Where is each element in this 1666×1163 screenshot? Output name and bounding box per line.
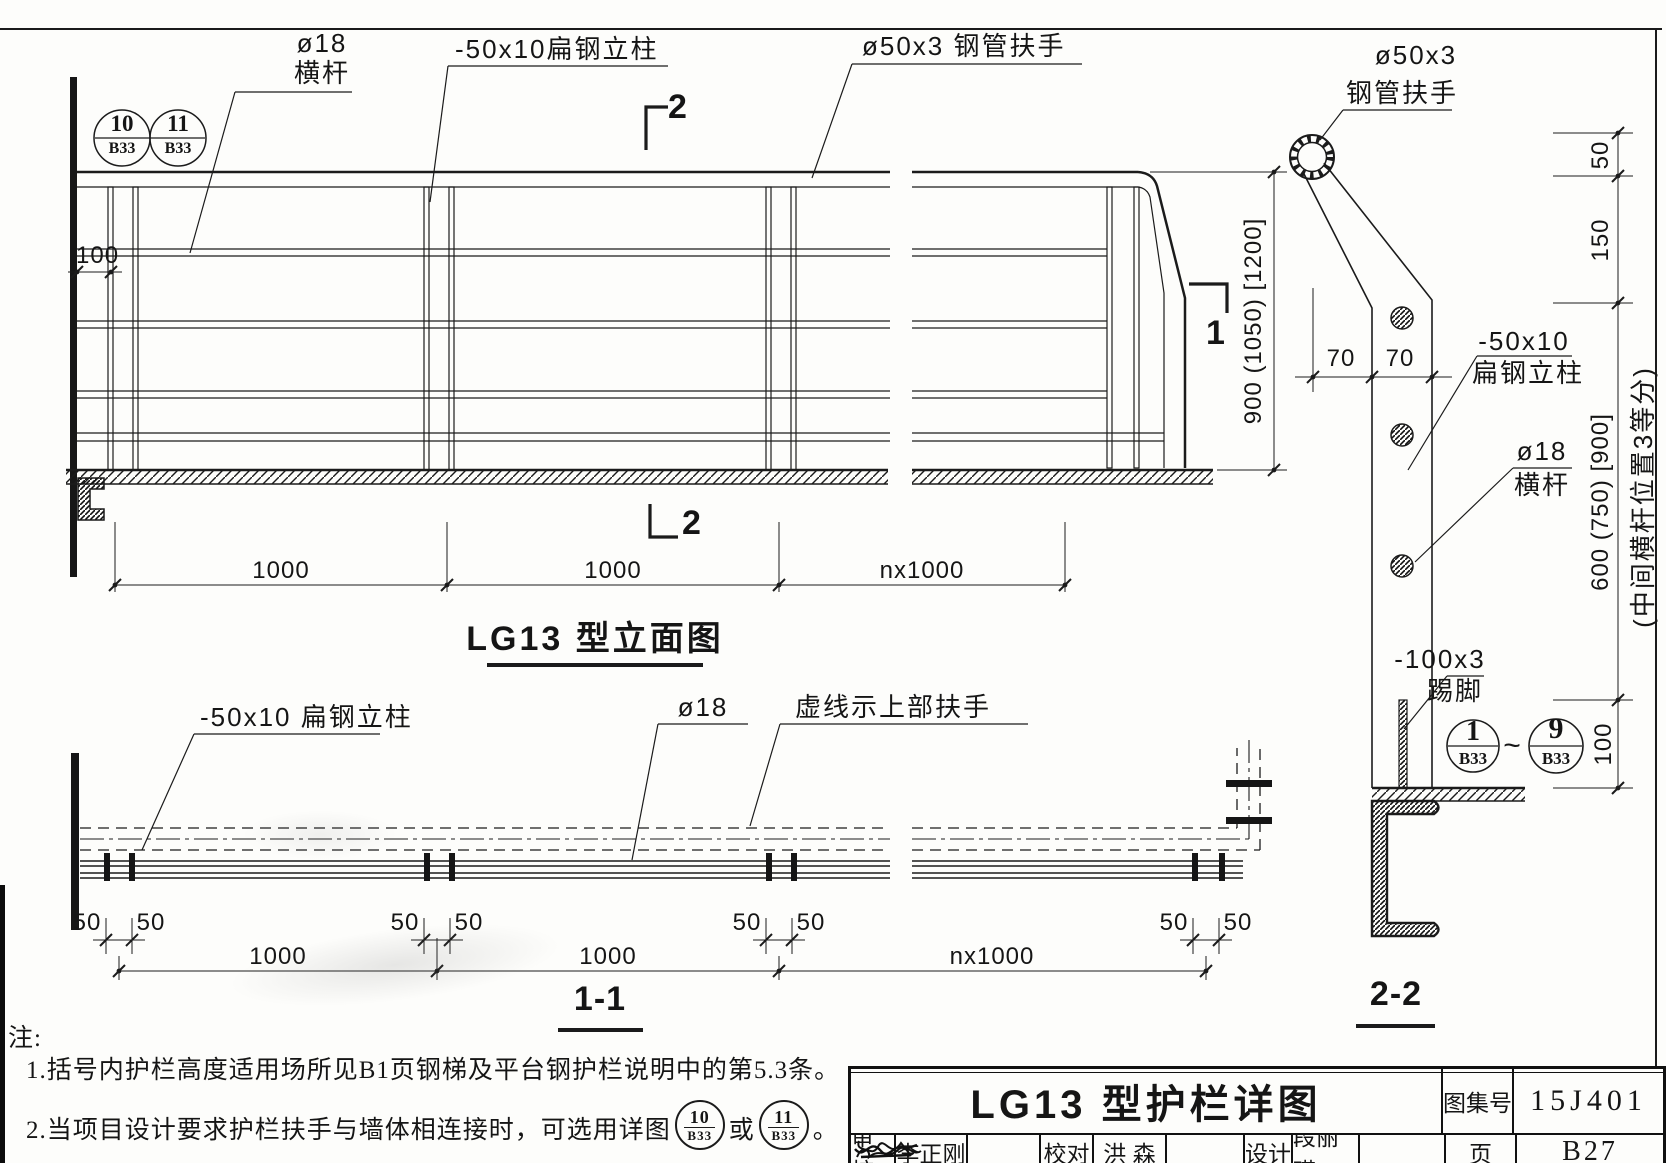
ref-9-sheet: B33: [1542, 750, 1570, 768]
toe-plate: [1399, 700, 1407, 788]
plan-view: [71, 724, 1272, 1030]
dim-100-toe-text: 100: [1592, 722, 1616, 765]
sect-post-size-label: -50x10: [1478, 328, 1570, 355]
elev-crossbar-name-label: 横杆: [294, 60, 350, 87]
note-ref-11-sheet: B33: [768, 1127, 799, 1143]
dim-span1-text: 1000: [252, 558, 309, 583]
note-ref-10-sheet: B33: [684, 1127, 715, 1143]
section-title: 2-2: [1370, 977, 1422, 1013]
plan-dashed-note-label: 虚线示上部扶手: [795, 694, 991, 721]
dim-wall-gap-text: 100: [76, 243, 119, 268]
plan-offset-50: 50: [455, 910, 484, 935]
elevation-view: [66, 64, 1287, 665]
section-leaders: [1320, 110, 1572, 729]
handrail-pipe-section: [1290, 135, 1334, 179]
dim-600-text: 600 (750) [900]: [1589, 413, 1613, 591]
sect-crossbar-size-label: ø18: [1517, 438, 1568, 465]
plan-leaders: [142, 724, 1028, 860]
detail-ref-11-num: 11: [167, 112, 189, 136]
section-mark-2-bottom: 2: [682, 506, 701, 542]
dim-height-text: 900 (1050) [1200]: [1242, 218, 1266, 424]
proofer-name: 洪 森: [1092, 1135, 1165, 1163]
plan-span3-text: nx1000: [950, 944, 1035, 969]
elev-handrail-label: ø50x3 钢管扶手: [862, 33, 1066, 60]
ref-9-num: 9: [1549, 713, 1564, 745]
note-ref-11-num: 11: [774, 1108, 793, 1127]
design-label: 设计: [1243, 1135, 1291, 1163]
drawing-sheet: ø18 横杆 -50x10扁钢立柱 ø50x3 钢管扶手 2 2 1 100 9…: [0, 0, 1666, 1163]
sect-toe-size-label: -100x3: [1394, 646, 1486, 673]
dim-span2-text: 1000: [584, 558, 641, 583]
sect-post-name-label: 扁钢立柱: [1472, 360, 1584, 387]
note-ref-10-bubble: 10 B33: [675, 1100, 725, 1150]
bent-post: [1303, 163, 1432, 788]
note-2-text: 2.当项目设计要求护栏扶手与墙体相连接时，可选用详图: [26, 1118, 671, 1144]
sect-handrail-name-label: 钢管扶手: [1346, 80, 1458, 107]
note-2-or: 或: [729, 1118, 755, 1144]
section-floor: [1372, 788, 1525, 936]
notes-heading: 注:: [8, 1026, 42, 1052]
detail-ref-10-sheet: B33: [109, 141, 136, 158]
cross-bars: [77, 249, 1164, 441]
plan-offset-50: 50: [1224, 910, 1253, 935]
proofer-signature: [1165, 1135, 1243, 1163]
plan-title: 1-1: [574, 982, 626, 1018]
plan-offset-50: 50: [1160, 910, 1189, 935]
designer-name: 段丽瑛: [1291, 1135, 1358, 1163]
elev-crossbar-size-label: ø18: [297, 30, 348, 57]
plan-offset-50: 50: [73, 910, 102, 935]
dim-span3-text: nx1000: [880, 558, 965, 583]
ref-1-sheet: B33: [1459, 750, 1487, 768]
channel-bracket: [78, 478, 104, 520]
reviewer-signature: [966, 1135, 1039, 1163]
plan-bars: [80, 861, 1243, 878]
atlas-number: 15J401: [1512, 1069, 1663, 1133]
section-mark-1: 1: [1206, 316, 1225, 352]
upper-handrail-dashed: [80, 748, 1260, 850]
detail-ref-11-sheet: B33: [165, 141, 192, 158]
elev-post-label: -50x10扁钢立柱: [455, 36, 659, 63]
dim-70-left-text: 70: [1327, 346, 1356, 371]
note-ref-11-bubble: 11 B33: [759, 1100, 809, 1150]
note-2: 2.当项目设计要求护栏扶手与墙体相连接时，可选用详图 10 B33 或 11 B…: [26, 1106, 839, 1156]
designer-signature: [1358, 1135, 1444, 1163]
sect-toe-name-label: 踢脚: [1427, 678, 1483, 705]
dim-50-text: 50: [1589, 141, 1613, 170]
wall-edge-plan: [71, 753, 79, 930]
ref-1-num: 1: [1466, 717, 1480, 746]
section-mark-2-top: 2: [668, 90, 687, 126]
detail-ref-10-num: 10: [111, 112, 134, 136]
elevation-title: LG13 型立面图: [466, 622, 723, 658]
channel-section: [1372, 801, 1439, 936]
floor-plate: [66, 470, 1213, 484]
ref-tilde: ~: [1503, 730, 1521, 762]
dim-150-text: 150: [1589, 218, 1613, 261]
drawing-title: LG13 型护栏详图: [851, 1069, 1441, 1133]
centerline: [80, 740, 1249, 839]
sect-crossbar-name-label: 横杆: [1514, 472, 1570, 499]
plan-offset-50: 50: [391, 910, 420, 935]
plan-offset-50: 50: [797, 910, 826, 935]
wall-edge: [70, 77, 77, 577]
dim-mid-note-text: (中间横杆位置3等分): [1630, 366, 1656, 628]
elevation-leaders: [190, 64, 1082, 253]
page-number: B27: [1515, 1135, 1663, 1163]
proof-label: 校对: [1039, 1135, 1092, 1163]
plan-offset-50: 50: [733, 910, 762, 935]
note-ref-10-num: 10: [690, 1108, 710, 1127]
dim-70: [1295, 288, 1452, 392]
section-view: [1290, 110, 1633, 1026]
plan-span2-text: 1000: [579, 944, 636, 969]
plan-crossbar-label: ø18: [678, 694, 729, 721]
note-2-period: 。: [813, 1118, 839, 1144]
page-label: 页: [1444, 1135, 1515, 1163]
dim-70-right-text: 70: [1386, 346, 1415, 371]
plan-post-label: -50x10 扁钢立柱: [200, 704, 413, 731]
sect-handrail-size-label: ø50x3: [1375, 42, 1457, 69]
plan-span1-text: 1000: [249, 944, 306, 969]
handrail-end-bend: [1138, 172, 1185, 468]
note-1: 1.括号内护栏高度适用场所见B1页钢梯及平台钢护栏说明中的第5.3条。: [26, 1058, 840, 1084]
title-block: LG13 型护栏详图 图集号 15J401 审核 李正刚 校对 洪 森 设计 段…: [848, 1066, 1666, 1163]
plan-offset-50: 50: [137, 910, 166, 935]
atlas-label: 图集号: [1441, 1069, 1512, 1133]
